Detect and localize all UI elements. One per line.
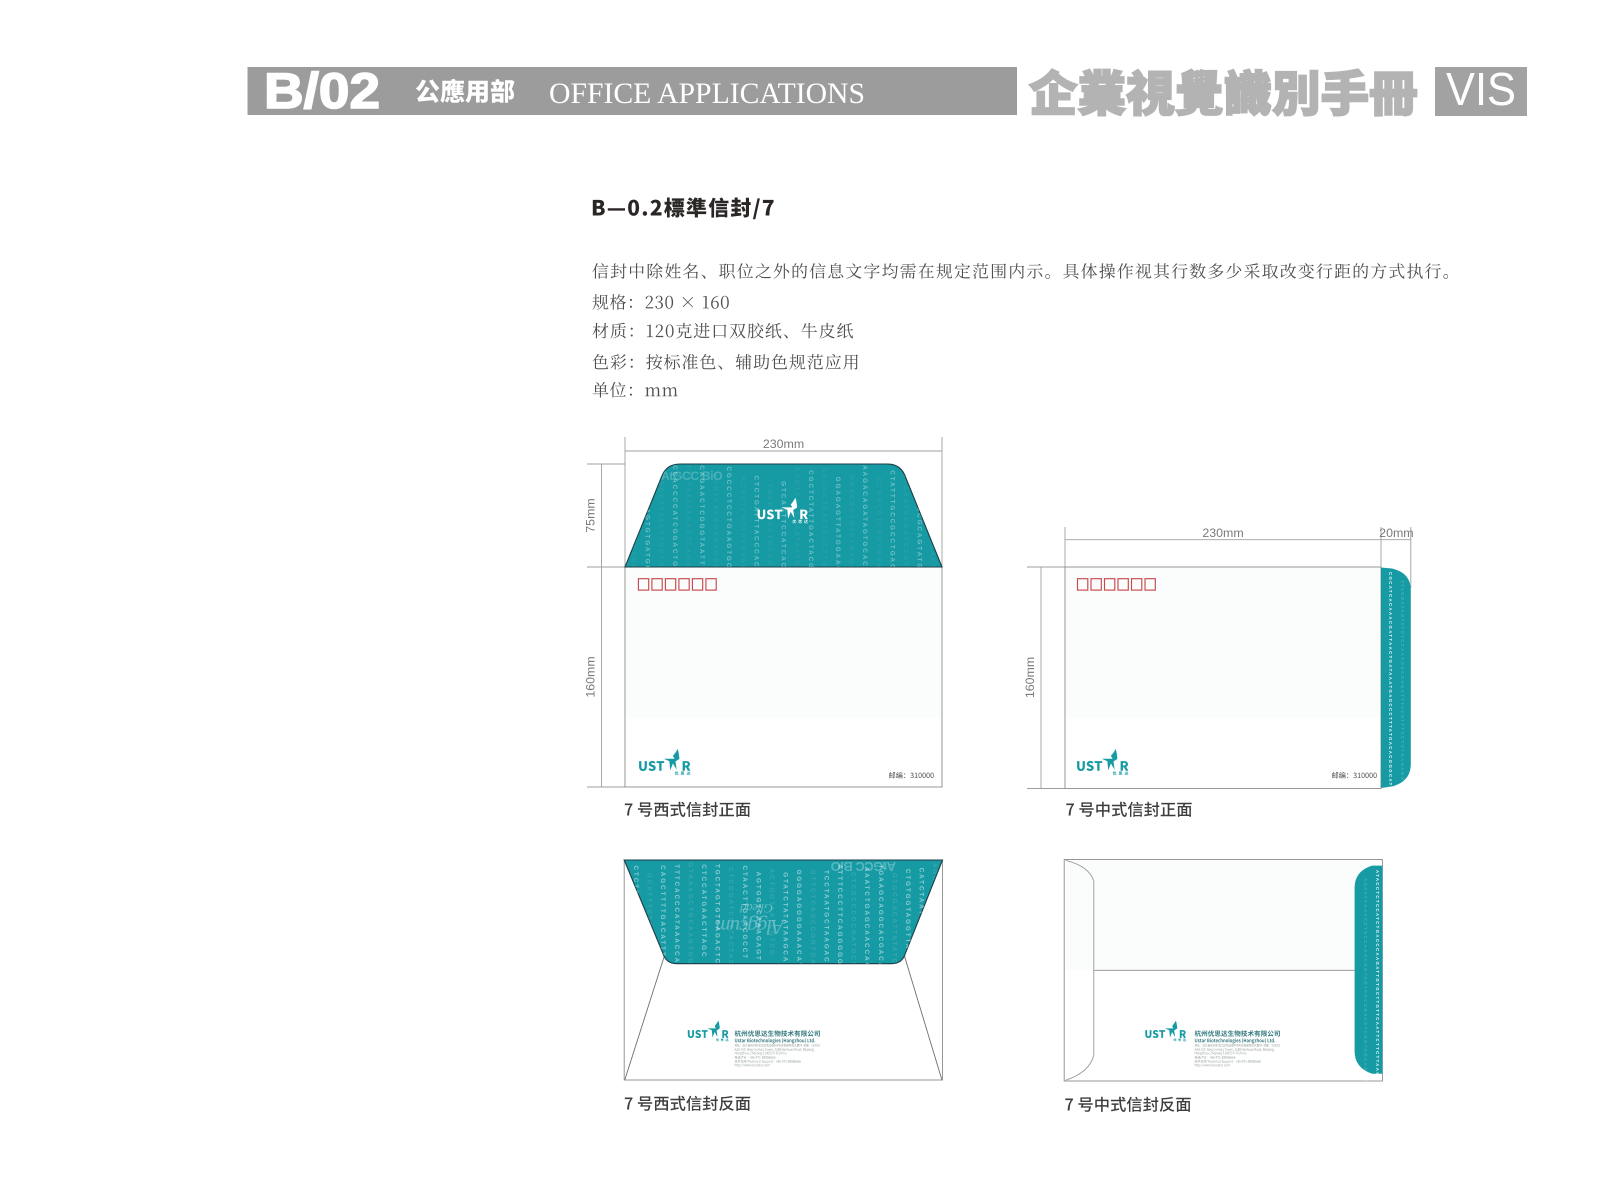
svg-text:TTACGATAGTATGTCCAACGGCGAGCTTTA: TTACGATAGTATGTCCAACGGCGAGCTTTACATTTGCTGT…: [1400, 580, 1405, 808]
svg-text:GGGGAGGGGAAACATTT: GGGGAGGGGAAACATTT: [795, 870, 802, 980]
svg-text:AAATCTGAGCAACCAGC: AAATCTGAGCAACCAGC: [863, 867, 870, 976]
svg-text:CTATTTGCCGCCTGACAA: CTATTTGCCGCCTGACAA: [888, 470, 895, 583]
svg-text:CTCCATGAACTTAGC: CTCCATGAACTTAGC: [700, 864, 707, 958]
svg-text:GTAAAGCTGCAAGTGG: GTAAAGCTGCAAGTGG: [686, 862, 693, 965]
svg-text:160mm: 160mm: [1023, 657, 1037, 698]
svg-text:VIS: VIS: [1446, 63, 1516, 115]
svg-text:AGGTCACGCAGAGGCG: AGGTCACGCAGAGGCG: [712, 473, 719, 578]
svg-text:OFFICE APPLICATIONS: OFFICE APPLICATIONS: [549, 77, 865, 110]
svg-text:20mm: 20mm: [1379, 526, 1413, 540]
svg-text:AGAATCAAACCTGCCAGGCGGTCGTCGCGG: AGAATCAAACCTGCCAGGCGGTCGTCGCGGACCTCGGTCG…: [1363, 878, 1368, 1107]
svg-text:GTTCTCAGCCGGTGAC: GTTCTCAGCCGGTGAC: [809, 870, 816, 972]
svg-text:230mm: 230mm: [763, 437, 804, 451]
svg-text:Alggcum: Alggcum: [716, 915, 786, 939]
svg-text:160mm: 160mm: [584, 656, 598, 697]
svg-text:75mm: 75mm: [584, 498, 598, 532]
svg-text:AtGCC BiO: AtGCC BiO: [831, 859, 896, 874]
svg-text:CGCGCTCATTCCCTTGTC: CGCGCTCATTCCCTTGTC: [820, 468, 827, 581]
svg-text:TTTCACCCATAAACCAGC: TTTCACCCATAAACCAGC: [673, 864, 680, 977]
svg-text:GTGCGACATTATATCA: GTGCGACATTATATCA: [890, 873, 897, 972]
svg-text:TCCTAATGCTAAGAC: TCCTAATGCTAAGAC: [822, 870, 829, 964]
svg-text:AtGCC BiO: AtGCC BiO: [661, 469, 722, 483]
svg-text:CTCTGATTTACCCACTC: CTCTGATTTACCCACTC: [752, 476, 759, 581]
svg-text:ATTTCCCTTCAGGGGGGG: ATTTCCCTTCAGGGGGGG: [836, 864, 843, 979]
svg-text:ACACTCGCTATGAAT: ACACTCGCTATGAAT: [739, 477, 746, 571]
svg-text:CGCTCTATTGACTACGA: CGCTCTATTGACTACGA: [807, 470, 814, 576]
svg-text:230mm: 230mm: [1202, 526, 1243, 540]
svg-text:ATACCTCTCCATCTGACCCAAGATTGTGCT: ATACCTCTCCATCTGACCCAAGATTGTGCTTGTTCAATTC…: [1375, 870, 1380, 1112]
svg-text:B/02: B/02: [264, 63, 380, 119]
svg-text:TGAAGCAGGCACGACA: TGAAGCAGGCACGACA: [877, 865, 884, 970]
svg-text:CGCATCACAAACGATTAACTGATAAATGAG: CGCATCACAAACGATTAACTGATAAATGAGCCCTTTATGA…: [1388, 572, 1393, 826]
svg-text:Gliead: Gliead: [740, 901, 773, 916]
